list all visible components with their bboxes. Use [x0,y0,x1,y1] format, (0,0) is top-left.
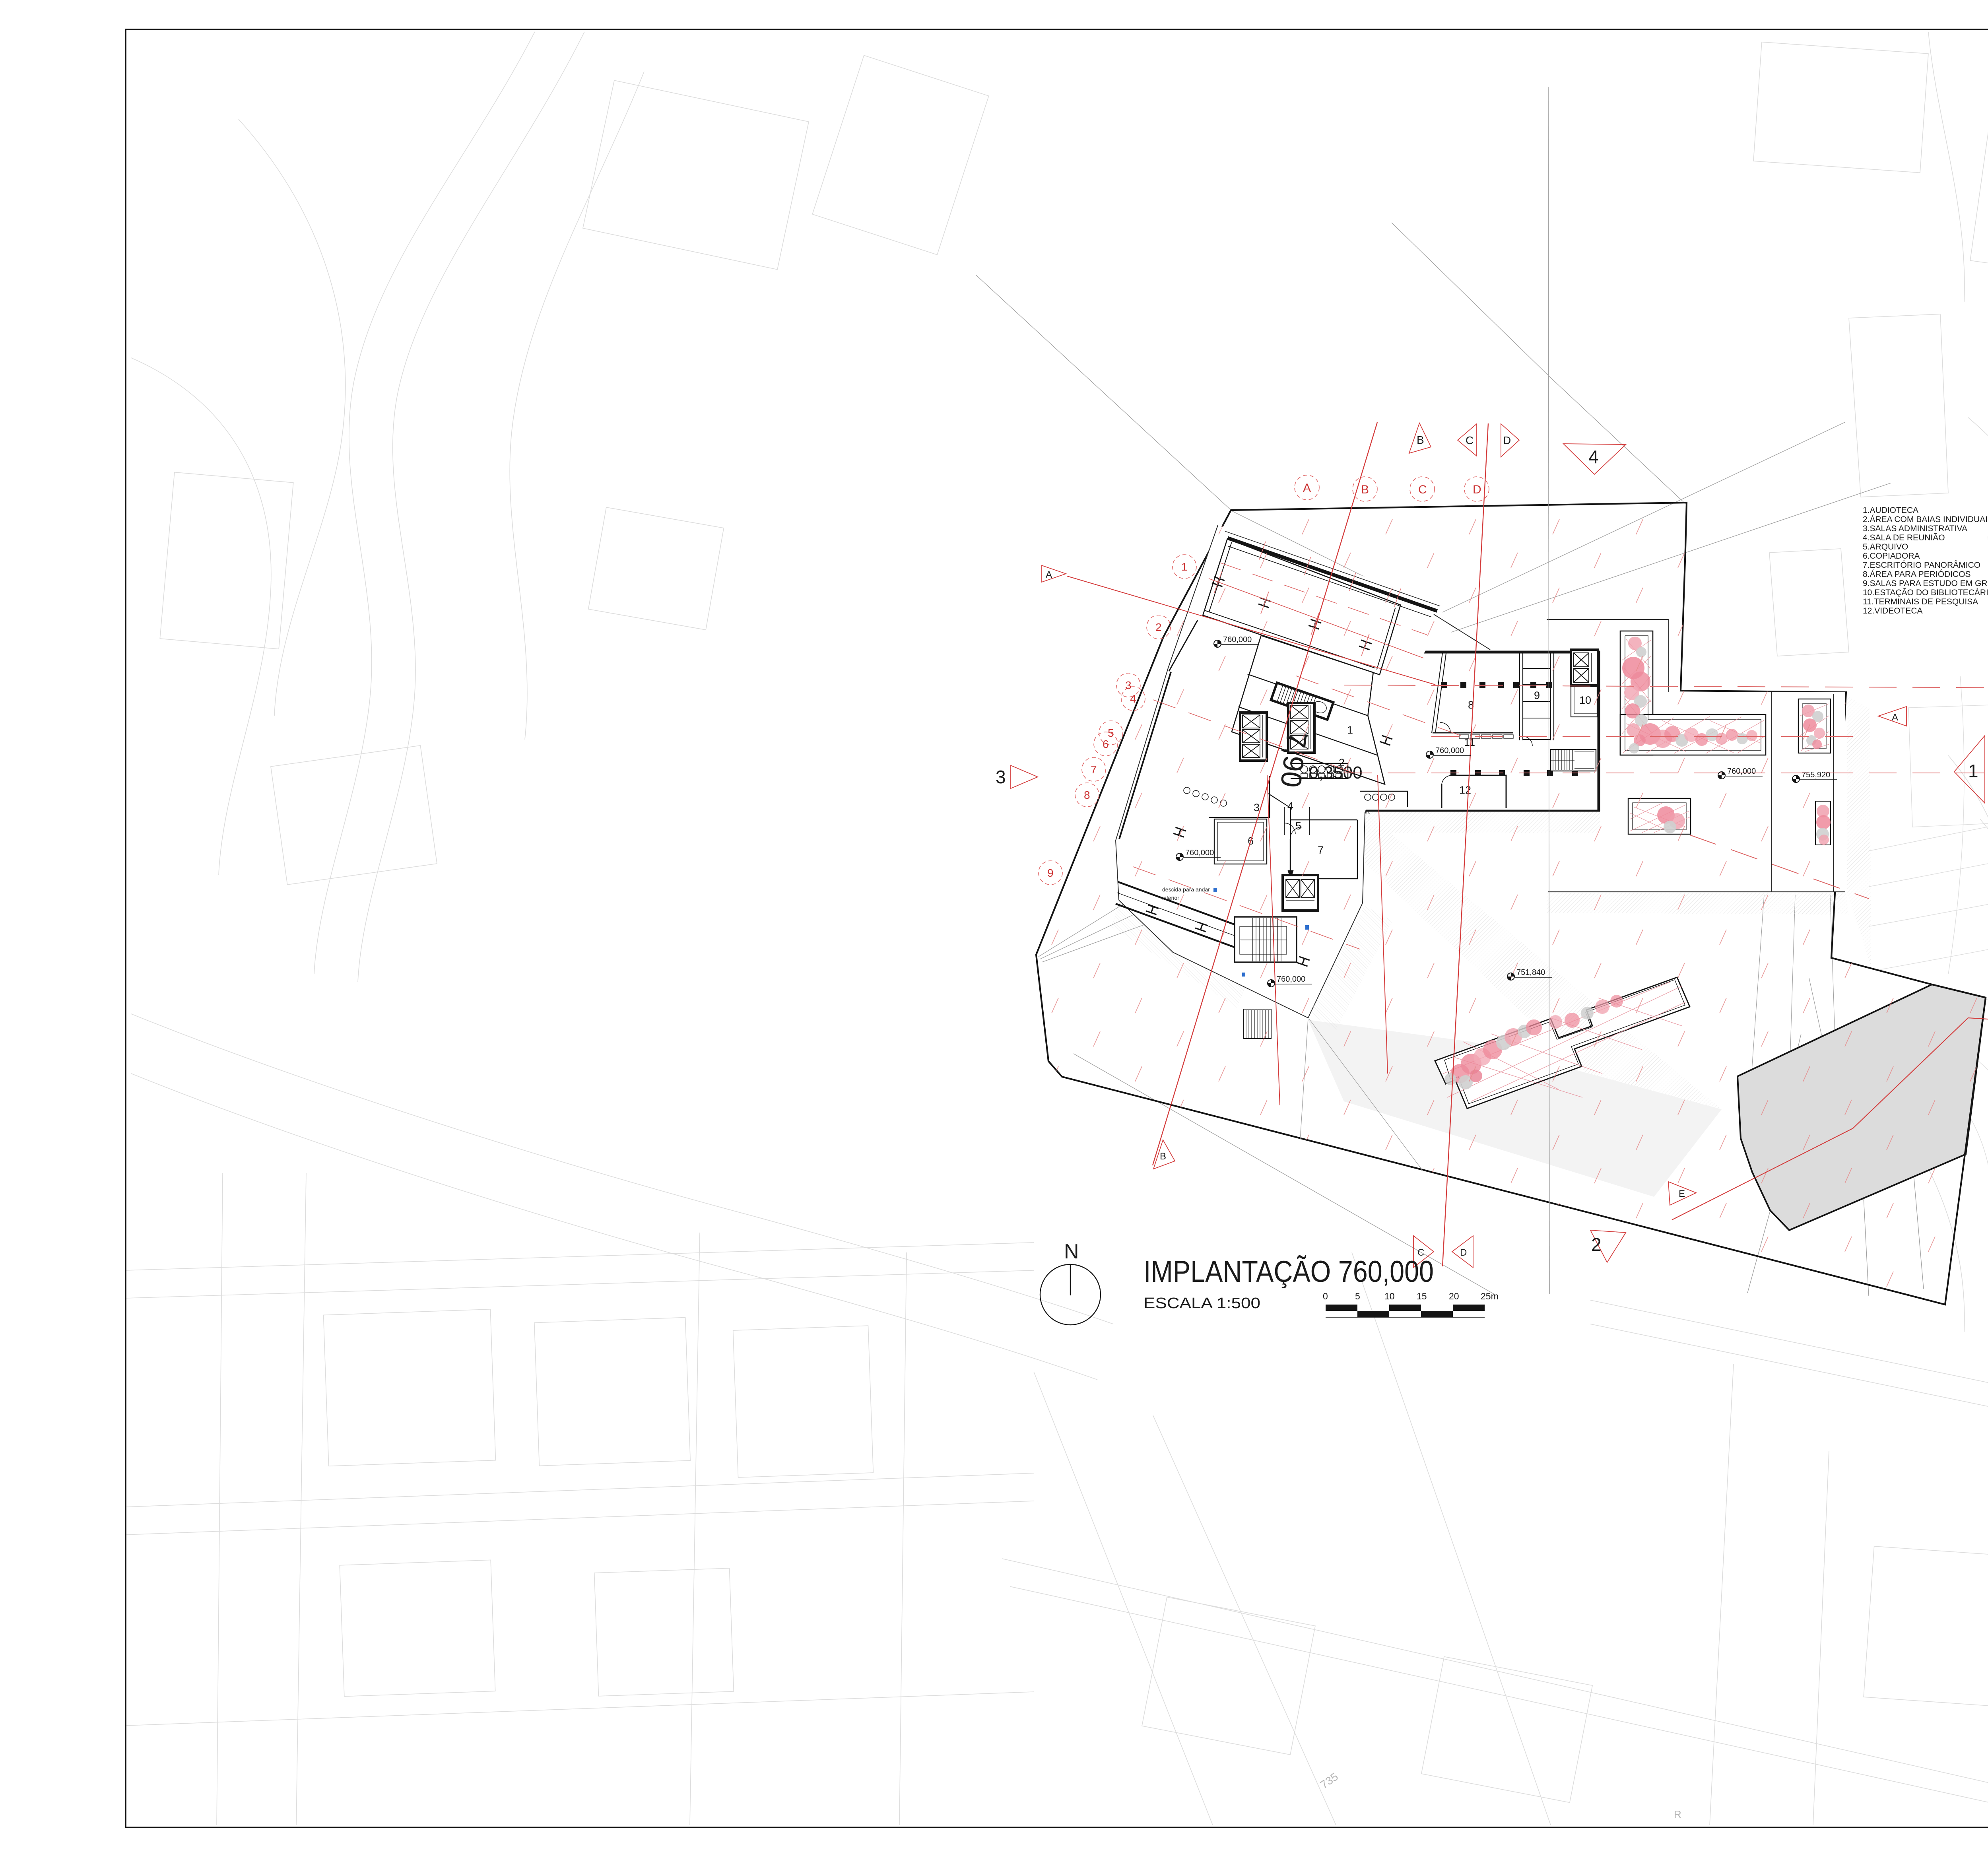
svg-text:760,000: 760,000 [1223,635,1252,644]
svg-text:A: A [1892,712,1898,723]
svg-text:3.SALAS ADMINISTRATIVA: 3.SALAS ADMINISTRATIVA [1863,524,1967,533]
svg-text:11.TERMINAIS DE PESQUISA: 11.TERMINAIS DE PESQUISA [1863,597,1978,606]
svg-text:B: B [1160,1151,1166,1162]
svg-text:9: 9 [1047,867,1054,879]
svg-text:4.SALA DE REUNIÃO: 4.SALA DE REUNIÃO [1863,533,1945,542]
svg-text:12.VIDEOTECA: 12.VIDEOTECA [1863,606,1923,615]
svg-text:1.AUDIOTECA: 1.AUDIOTECA [1863,506,1918,515]
svg-text:R: R [1674,1808,1681,1820]
svg-text:N: N [1064,1240,1079,1263]
svg-text:A: A [1303,482,1311,495]
svg-text:760,000: 760,000 [1727,767,1756,776]
svg-text:20: 20 [1449,1291,1459,1301]
svg-text:B: B [1361,483,1369,496]
svg-text:760,000: 760,000 [1185,848,1214,857]
svg-text:A: A [1046,569,1052,580]
svg-text:IMPLANTAÇÃO 760,000: IMPLANTAÇÃO 760,000 [1143,1255,1434,1289]
svg-text:3: 3 [1125,679,1132,691]
svg-text:E: E [1679,1188,1685,1199]
svg-text:7: 7 [1091,763,1097,776]
svg-text:0: 0 [1323,1291,1328,1301]
svg-text:7.ESCRITÓRIO PANORÂMICO: 7.ESCRITÓRIO PANORÂMICO [1863,561,1980,570]
svg-text:10: 10 [1384,1291,1395,1301]
svg-text:1: 1 [1181,561,1188,573]
svg-text:2: 2 [1591,1234,1602,1255]
svg-text:4: 4 [1588,447,1599,467]
svg-text:25m: 25m [1481,1291,1499,1301]
svg-text:C: C [1418,483,1427,496]
svg-text:8.ÁREA PARA PERIÓDICOS: 8.ÁREA PARA PERIÓDICOS [1863,570,1971,579]
svg-text:2: 2 [1155,621,1162,633]
svg-text:5: 5 [1355,1291,1360,1301]
svg-text:6.COPIADORA: 6.COPIADORA [1863,551,1920,561]
svg-text:C: C [1466,434,1474,447]
svg-text:10.ESTAÇÃO DO BIBLIOTECÁRIO: 10.ESTAÇÃO DO BIBLIOTECÁRIO [1863,588,1988,597]
svg-text:D: D [1503,434,1511,447]
svg-text:5.ARQUIVO: 5.ARQUIVO [1863,542,1908,551]
svg-text:B: B [1417,434,1424,446]
svg-text:2.ÁREA COM BAIAS INDIVIDUAIS: 2.ÁREA COM BAIAS INDIVIDUAIS [1863,515,1988,524]
svg-text:9.SALAS PARA ESTUDO EM GRUPO: 9.SALAS PARA ESTUDO EM GRUPO [1863,579,1988,588]
svg-text:ESCALA 1:500: ESCALA 1:500 [1143,1295,1260,1312]
svg-text:760,000: 760,000 [1435,746,1464,755]
svg-text:1: 1 [1968,761,1978,781]
svg-text:D: D [1473,483,1481,496]
svg-text:755,920: 755,920 [1802,771,1830,779]
svg-text:6: 6 [1103,738,1109,750]
svg-text:751,840: 751,840 [1516,968,1545,977]
svg-text:760,000: 760,000 [1277,975,1305,984]
svg-text:3: 3 [996,767,1006,787]
svg-text:4: 4 [1130,693,1136,705]
svg-text:D: D [1460,1247,1467,1258]
svg-text:8: 8 [1084,789,1090,801]
svg-text:5: 5 [1108,727,1114,739]
svg-text:15: 15 [1417,1291,1427,1301]
